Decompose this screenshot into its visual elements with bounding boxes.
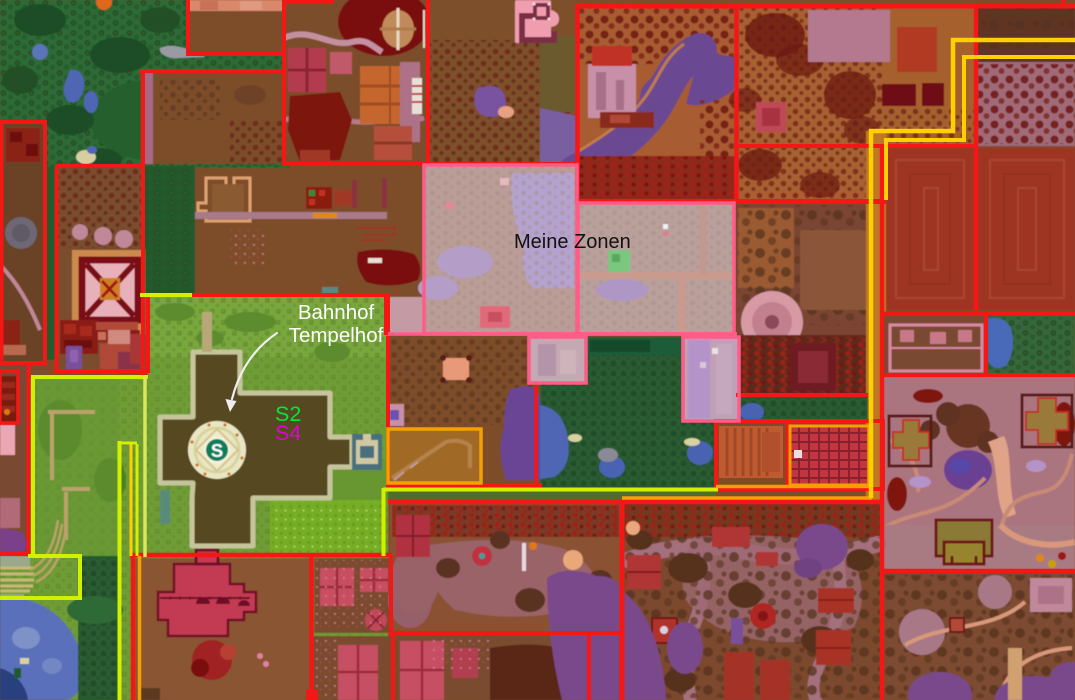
svg-text:S4: S4 — [275, 421, 301, 445]
svg-text:Meine Zonen: Meine Zonen — [514, 231, 631, 253]
svg-text:Bahnhof: Bahnhof — [298, 301, 375, 324]
svg-text:S: S — [211, 440, 223, 461]
svg-text:Tempelhof: Tempelhof — [289, 324, 384, 347]
